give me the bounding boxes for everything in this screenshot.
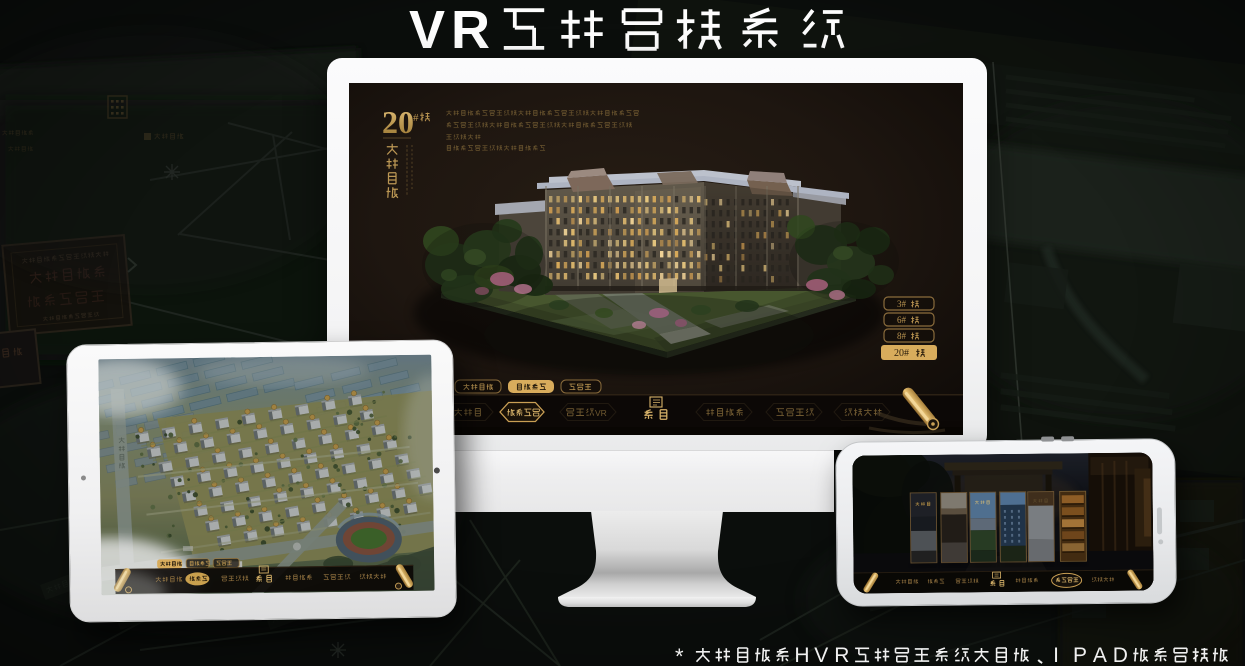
svg-text:VR: VR <box>409 0 496 60</box>
svg-text:8#: 8# <box>897 331 907 341</box>
svg-text:#: # <box>413 112 419 124</box>
svg-text:6#: 6# <box>897 315 907 325</box>
svg-text:P: P <box>1073 644 1087 666</box>
svg-text:H: H <box>794 644 809 666</box>
svg-text:V: V <box>814 644 828 666</box>
svg-text:I: I <box>1053 644 1059 666</box>
svg-text:R: R <box>834 644 849 666</box>
svg-text:*: * <box>675 644 684 666</box>
svg-text:A: A <box>1093 644 1107 666</box>
svg-text:VR: VR <box>595 408 607 418</box>
svg-text:D: D <box>1113 644 1128 666</box>
svg-text:20: 20 <box>382 104 414 140</box>
svg-text:20#: 20# <box>894 348 909 359</box>
svg-text:3#: 3# <box>897 299 907 309</box>
